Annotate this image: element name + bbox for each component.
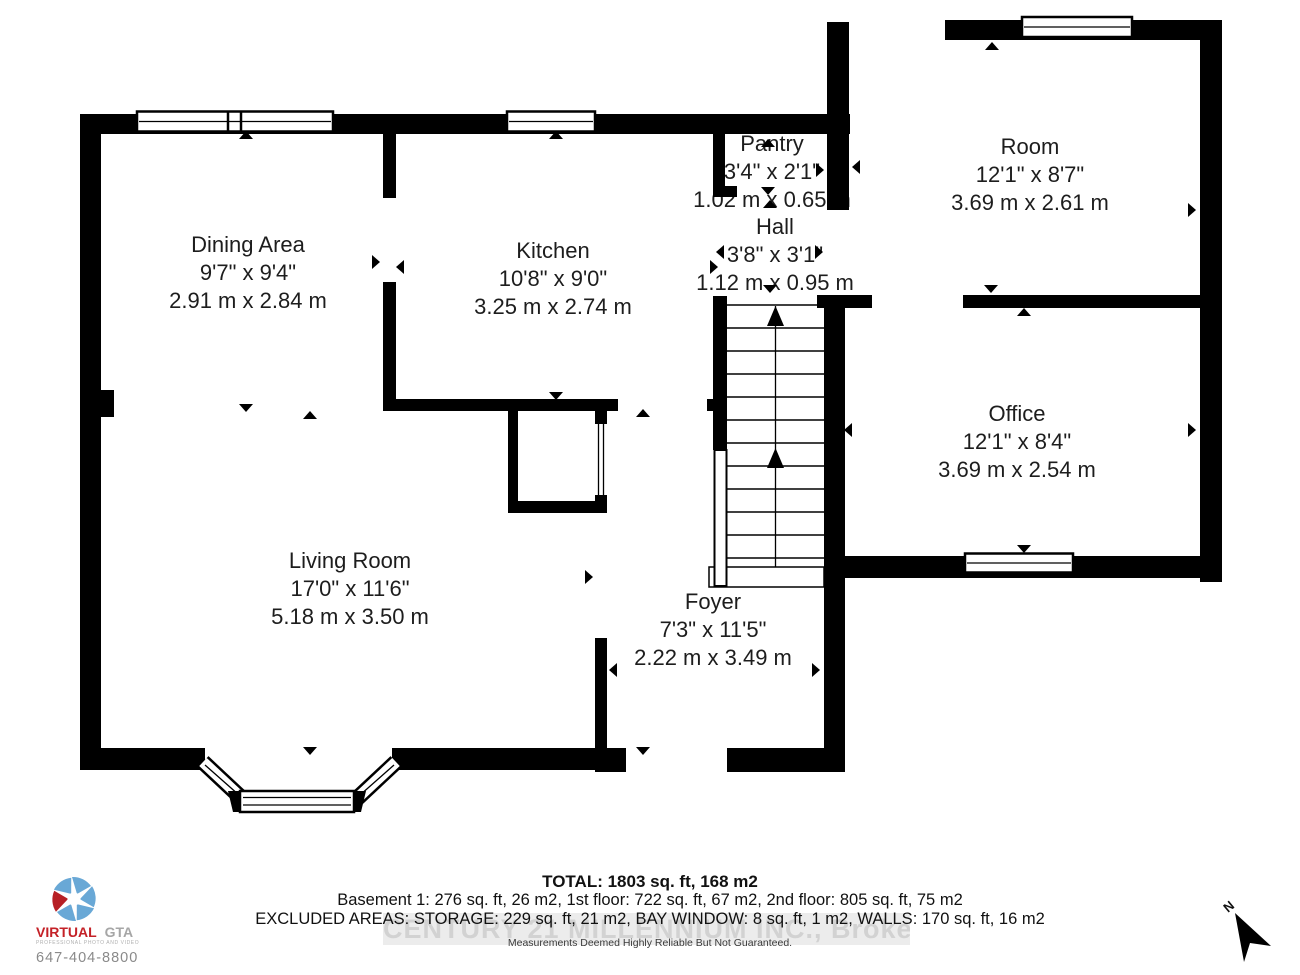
- arrow-right-icon: [816, 163, 824, 177]
- wall-living-bottom-left: [80, 748, 205, 770]
- arrow-left-icon: [844, 423, 852, 437]
- wall-stairs-left: [713, 296, 727, 450]
- wall-foyer-right: [824, 296, 845, 772]
- arrow-up-icon: [636, 409, 650, 417]
- arrow-down-icon: [984, 285, 998, 293]
- arrow-right-icon: [372, 255, 380, 269]
- arrow-left-icon: [716, 245, 724, 259]
- wall-pantry-right: [827, 22, 849, 210]
- arrow-down-icon: [1017, 545, 1031, 553]
- arrow-left-icon: [396, 260, 404, 274]
- arrow-down-icon: [763, 285, 777, 293]
- wall-dining-kitchen-lower: [383, 282, 396, 411]
- arrow-right-icon: [815, 245, 823, 259]
- stair-railing: [715, 450, 727, 586]
- bay-window: [203, 762, 396, 812]
- logo-brand-primary: VIRTUAL: [36, 924, 97, 940]
- logo-phone: 647-404-8800: [36, 949, 206, 967]
- wall-dining-kitchen-upper: [383, 134, 396, 198]
- logo-icon-spacer: [36, 872, 206, 924]
- floor-plan-drawing: [0, 0, 1300, 975]
- wall-exterior-left: [80, 114, 101, 770]
- window-kitchen: [507, 112, 595, 132]
- arrow-up-icon: [1017, 308, 1031, 316]
- wall-pantry-bottom-stub: [713, 186, 737, 197]
- arrow-left-icon: [852, 160, 860, 174]
- stair-up-arrow-icon: [767, 448, 784, 468]
- arrow-up-icon: [985, 42, 999, 50]
- arrow-left-icon: [609, 663, 617, 677]
- arrow-up-icon: [303, 411, 317, 419]
- wall-closet-nub-top: [595, 411, 607, 424]
- stair-up-arrow-icon: [767, 306, 784, 326]
- wall-closet-bottom: [508, 501, 607, 513]
- wall-closet-nub-bottom: [595, 495, 607, 513]
- walls-layer: [80, 20, 1222, 772]
- arrow-right-icon: [710, 260, 718, 274]
- wall-closet-left: [508, 411, 518, 513]
- window-dining-double: [137, 112, 333, 132]
- arrow-right-icon: [812, 663, 820, 677]
- arrow-up-icon: [763, 200, 777, 208]
- windows-layer: [137, 17, 1132, 812]
- wall-kitchen-bottom: [383, 399, 618, 411]
- wall-foyer-bottom-right: [727, 748, 845, 772]
- measurement-arrows: [88, 42, 1196, 755]
- arrow-down-icon: [549, 392, 563, 400]
- arrow-down-icon: [303, 747, 317, 755]
- arrow-down-icon: [239, 404, 253, 412]
- window-room: [1022, 17, 1132, 37]
- arrow-down-icon: [636, 747, 650, 755]
- arrow-right-icon: [1188, 423, 1196, 437]
- floor-plan-page: Dining Area 9'7" x 9'4" 2.91 m x 2.84 m …: [0, 0, 1300, 975]
- logo-tagline: PROFESSIONAL PHOTO AND VIDEO: [36, 940, 206, 947]
- wall-pillar-left: [95, 390, 114, 417]
- arrow-right-icon: [1188, 203, 1196, 217]
- window-office: [965, 554, 1073, 573]
- logo-brand-secondary: GTA: [105, 924, 134, 940]
- wall-living-bottom-right: [392, 748, 607, 770]
- closet-opening: [599, 424, 604, 495]
- wall-living-foyer-divider: [595, 638, 607, 772]
- arrow-right-icon: [585, 570, 593, 584]
- wall-room-office-divider-right: [963, 295, 1207, 308]
- arrow-up-icon: [761, 139, 775, 147]
- wall-room-office-divider-left: [817, 295, 872, 308]
- arrow-down-icon: [761, 187, 775, 195]
- wall-pantry-left: [713, 134, 725, 190]
- logo-brand: VIRTUAL GTA: [36, 925, 206, 940]
- virtual-gta-logo: VIRTUAL GTA PROFESSIONAL PHOTO AND VIDEO…: [36, 872, 206, 967]
